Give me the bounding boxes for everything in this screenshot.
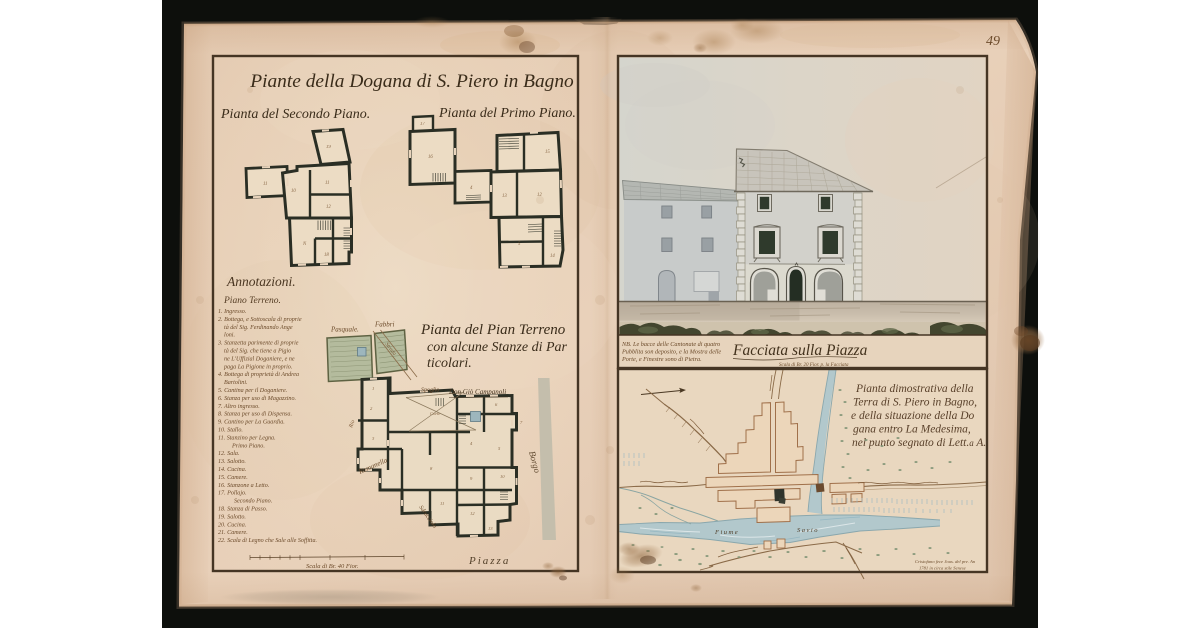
svg-text:nel punto segnato di Lett.a A.: nel punto segnato di Lett.a A. xyxy=(852,437,986,449)
svg-text:Facciata sulla Piazza: Facciata sulla Piazza xyxy=(732,342,868,359)
svg-text:Fabbri: Fabbri xyxy=(374,321,395,329)
svg-text:tà del Sig. Ferdinando Ange: tà del Sig. Ferdinando Ange xyxy=(224,325,293,331)
svg-text:Cristofano fece Jous. del pre.: Cristofano fece Jous. del pre. An xyxy=(915,559,976,564)
svg-text:loni.: loni. xyxy=(224,333,235,339)
svg-text:15. Camere.: 15. Camere. xyxy=(218,475,248,481)
svg-text:8. Stanza per uso di Dispensa.: 8. Stanza per uso di Dispensa. xyxy=(218,412,292,418)
svg-text:Corte: Corte xyxy=(430,411,440,416)
svg-text:1. Ingresso.: 1. Ingresso. xyxy=(218,309,246,315)
svg-text:Pianta dimostrativa della: Pianta dimostrativa della xyxy=(855,383,974,395)
svg-text:1: 1 xyxy=(372,386,374,391)
svg-text:Annotazioni.: Annotazioni. xyxy=(226,274,296,289)
svg-text:10: 10 xyxy=(291,189,296,194)
svg-text:11: 11 xyxy=(263,182,267,187)
svg-text:3. Stanzetta parimente di prop: 3. Stanzetta parimente di proprie xyxy=(217,341,299,347)
svg-text:13. Salotto.: 13. Salotto. xyxy=(218,459,246,465)
svg-text:Scala di Br. 40 Fior.: Scala di Br. 40 Fior. xyxy=(306,563,359,570)
svg-text:18: 18 xyxy=(324,253,329,258)
svg-text:gana entro La Medesima,: gana entro La Medesima, xyxy=(853,424,971,436)
svg-text:1781 in circa stile Senese: 1781 in circa stile Senese xyxy=(919,566,966,571)
svg-text:Fiume: Fiume xyxy=(714,529,739,536)
svg-text:12: 12 xyxy=(326,205,331,210)
svg-text:NB. Le bacce delle Cantonate d: NB. Le bacce delle Cantonate di quatro xyxy=(621,341,720,348)
svg-text:2. Bottega, e Sottoscala di pr: 2. Bottega, e Sottoscala di proprie xyxy=(218,317,302,323)
svg-text:17: 17 xyxy=(420,122,425,127)
svg-text:paga La Pigione in proprio.: paga La Pigione in proprio. xyxy=(223,364,292,370)
svg-text:15: 15 xyxy=(545,150,550,155)
svg-text:4. Bottega di proprietà di And: 4. Bottega di proprietà di Andrea xyxy=(218,372,299,378)
svg-text:10: 10 xyxy=(500,474,505,479)
svg-text:con alcune Stanze di Par: con alcune Stanze di Par xyxy=(427,340,568,355)
svg-text:Pubblita son deposito, e la Mo: Pubblita son deposito, e la Mostra delle xyxy=(621,349,721,356)
svg-text:14. Cucina.: 14. Cucina. xyxy=(218,467,246,473)
svg-text:19. Salotto.: 19. Salotto. xyxy=(218,514,246,520)
svg-text:5. Cantina per il Doganiere.: 5. Cantina per il Doganiere. xyxy=(218,388,287,394)
svg-text:ticolari.: ticolari. xyxy=(427,356,472,371)
svg-text:Piante della Dogana di S. Pier: Piante della Dogana di S. Piero in Bagno xyxy=(249,71,574,92)
svg-text:7. Altro ingresso.: 7. Altro ingresso. xyxy=(218,404,260,410)
svg-text:Piazza: Piazza xyxy=(468,555,510,567)
svg-text:Savio: Savio xyxy=(797,527,819,534)
svg-text:19: 19 xyxy=(326,145,331,150)
svg-text:Terra di S. Piero in Bagno,: Terra di S. Piero in Bagno, xyxy=(853,397,977,409)
svg-text:Bartolini.: Bartolini. xyxy=(224,380,248,386)
svg-text:ne L'Uffizial Doganiere, e ne: ne L'Uffizial Doganiere, e ne xyxy=(224,355,295,362)
svg-text:Pianta del Primo Piano.: Pianta del Primo Piano. xyxy=(438,106,576,121)
svg-text:13: 13 xyxy=(502,194,507,199)
svg-text:Don Giò Campanoli: Don Giò Campanoli xyxy=(448,388,506,396)
svg-text:11: 11 xyxy=(440,501,444,506)
svg-text:Pasquale.: Pasquale. xyxy=(330,326,359,334)
svg-text:11: 11 xyxy=(325,181,329,186)
svg-text:6. Stanza per uso di Magazzino: 6. Stanza per uso di Magazzino. xyxy=(218,396,296,402)
svg-text:11. Stanzino per Legna.: 11. Stanzino per Legna. xyxy=(218,435,276,441)
svg-text:20. Cucina.: 20. Cucina. xyxy=(218,522,246,528)
svg-text:13: 13 xyxy=(488,526,493,531)
svg-text:12: 12 xyxy=(470,511,475,516)
svg-text:Pianta del Pian Terreno: Pianta del Pian Terreno xyxy=(420,322,566,338)
svg-text:17. Pollajo.: 17. Pollajo. xyxy=(218,491,247,497)
svg-text:49: 49 xyxy=(986,34,1000,49)
svg-text:12. Sala.: 12. Sala. xyxy=(218,451,240,457)
svg-text:16. Stanzone a Letto.: 16. Stanzone a Letto. xyxy=(218,483,269,489)
svg-text:14: 14 xyxy=(550,254,555,259)
svg-text:Piano Terreno.: Piano Terreno. xyxy=(223,296,281,306)
svg-text:Pianta del Secondo Piano.: Pianta del Secondo Piano. xyxy=(220,107,370,122)
svg-text:18. Stanza di Passo.: 18. Stanza di Passo. xyxy=(218,507,267,513)
svg-text:21. Camere.: 21. Camere. xyxy=(218,530,248,536)
svg-text:tà del Sig. che tiene a Pigio: tà del Sig. che tiene a Pigio xyxy=(224,349,291,355)
svg-text:16: 16 xyxy=(428,155,433,160)
svg-text:Secondo Piano.: Secondo Piano. xyxy=(234,499,272,505)
svg-text:22. Scala di Legno che Sale al: 22. Scala di Legno che Sale alle Soffitt… xyxy=(218,537,317,544)
svg-text:10. Stallo.: 10. Stallo. xyxy=(218,428,243,434)
svg-text:9. Cantino per La Guardia.: 9. Cantino per La Guardia. xyxy=(218,420,285,426)
svg-text:Primo Piano.: Primo Piano. xyxy=(231,443,265,449)
svg-text:Spoglio: Spoglio xyxy=(421,388,439,394)
svg-text:e della situazione della Do: e della situazione della Do xyxy=(851,410,975,422)
svg-text:Porte, e Finestre sono di Piet: Porte, e Finestre sono di Pietra. xyxy=(621,356,702,363)
